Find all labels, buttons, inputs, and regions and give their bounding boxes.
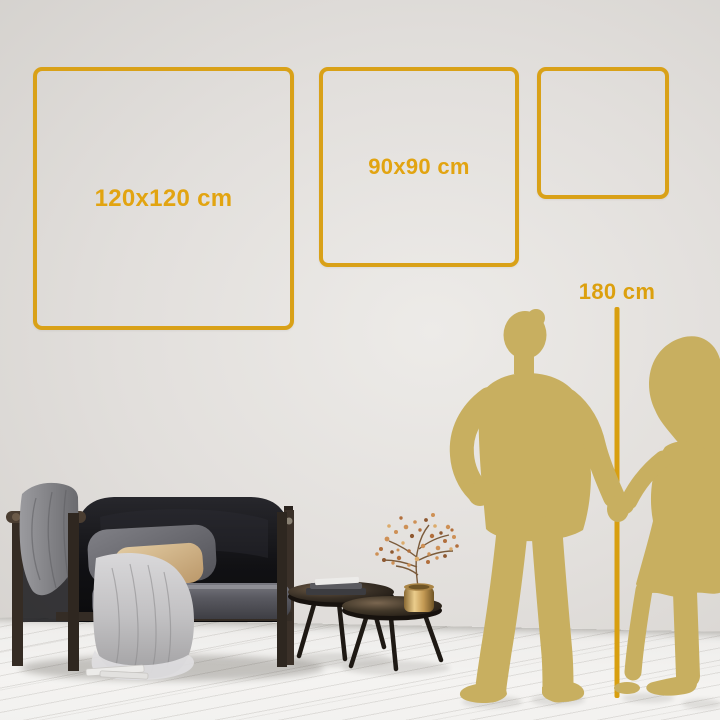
man-right-leg bbox=[547, 532, 558, 687]
woman-right-foot bbox=[646, 674, 697, 696]
man-right-foot bbox=[542, 681, 584, 702]
branch-stems bbox=[383, 525, 453, 587]
man-silhouette bbox=[460, 309, 629, 703]
woman-left-hand bbox=[616, 496, 634, 514]
vase-opening bbox=[409, 585, 430, 590]
woman-right-leg bbox=[685, 592, 688, 676]
woman-left-leg bbox=[633, 590, 644, 672]
scene-illustration bbox=[0, 0, 720, 720]
branch-leaves bbox=[375, 513, 459, 567]
woman-left-foot bbox=[614, 682, 640, 694]
size-guide-image: 120x120 cm 90x90 cm 180 cm bbox=[0, 0, 720, 720]
woman-silhouette bbox=[614, 336, 720, 695]
books bbox=[306, 577, 366, 595]
sofa-front-right-post bbox=[277, 512, 287, 667]
sofa-left-inner-post bbox=[68, 513, 79, 671]
man-left-hand bbox=[468, 482, 492, 506]
man-left-leg bbox=[491, 532, 512, 687]
rail-end-cap bbox=[12, 513, 20, 521]
coffee-tables bbox=[288, 513, 459, 669]
sofa bbox=[6, 483, 294, 680]
man-left-foot bbox=[460, 683, 507, 703]
